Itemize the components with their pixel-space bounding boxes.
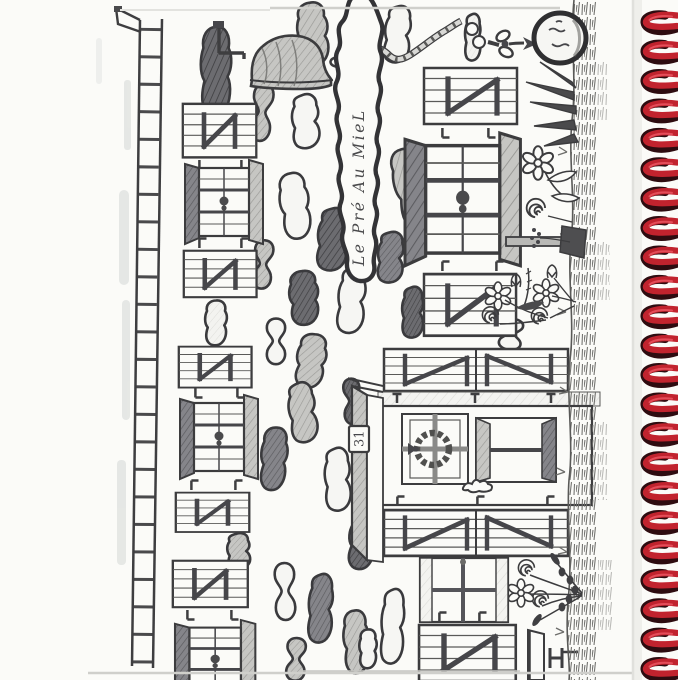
sign-text: Le Pré Au MieL xyxy=(350,108,368,267)
notebook-page-scan: Le Pré Au MieL 31 xyxy=(0,0,678,680)
path-stone xyxy=(290,93,320,149)
h-bar-window xyxy=(476,418,556,482)
glazed-door xyxy=(185,160,263,244)
shuttered-window xyxy=(184,251,257,297)
path-stone xyxy=(288,270,321,326)
bush xyxy=(402,287,423,338)
porch-perspective xyxy=(348,378,383,562)
path-stone xyxy=(377,231,404,283)
glazed-door xyxy=(175,620,255,680)
pencil-drawing: Le Pré Au MieL 31 xyxy=(0,0,678,680)
path-stone xyxy=(380,588,405,664)
shuttered-window xyxy=(176,493,250,532)
bush xyxy=(205,300,227,345)
path-stone xyxy=(307,573,333,643)
house-number: 31 xyxy=(353,430,368,447)
glazed-entry-door xyxy=(405,133,520,266)
round-tree xyxy=(534,13,586,63)
cross-window xyxy=(420,558,508,622)
barn-shutter xyxy=(424,68,517,124)
shuttered-window xyxy=(173,561,248,607)
wreath-window xyxy=(402,414,468,484)
path-stone xyxy=(323,447,351,511)
shuttered-window xyxy=(183,104,256,158)
double-barn-shutter xyxy=(384,349,568,391)
house-plaque: 31 xyxy=(349,426,369,452)
ledge-strip xyxy=(378,392,600,406)
double-barn-shutter xyxy=(384,510,568,556)
path-stone xyxy=(359,629,376,668)
glazed-door xyxy=(180,395,258,479)
sign-stone: Le Pré Au MieL xyxy=(335,0,382,281)
shuttered-window xyxy=(179,347,252,388)
bracket-flag xyxy=(213,21,224,28)
